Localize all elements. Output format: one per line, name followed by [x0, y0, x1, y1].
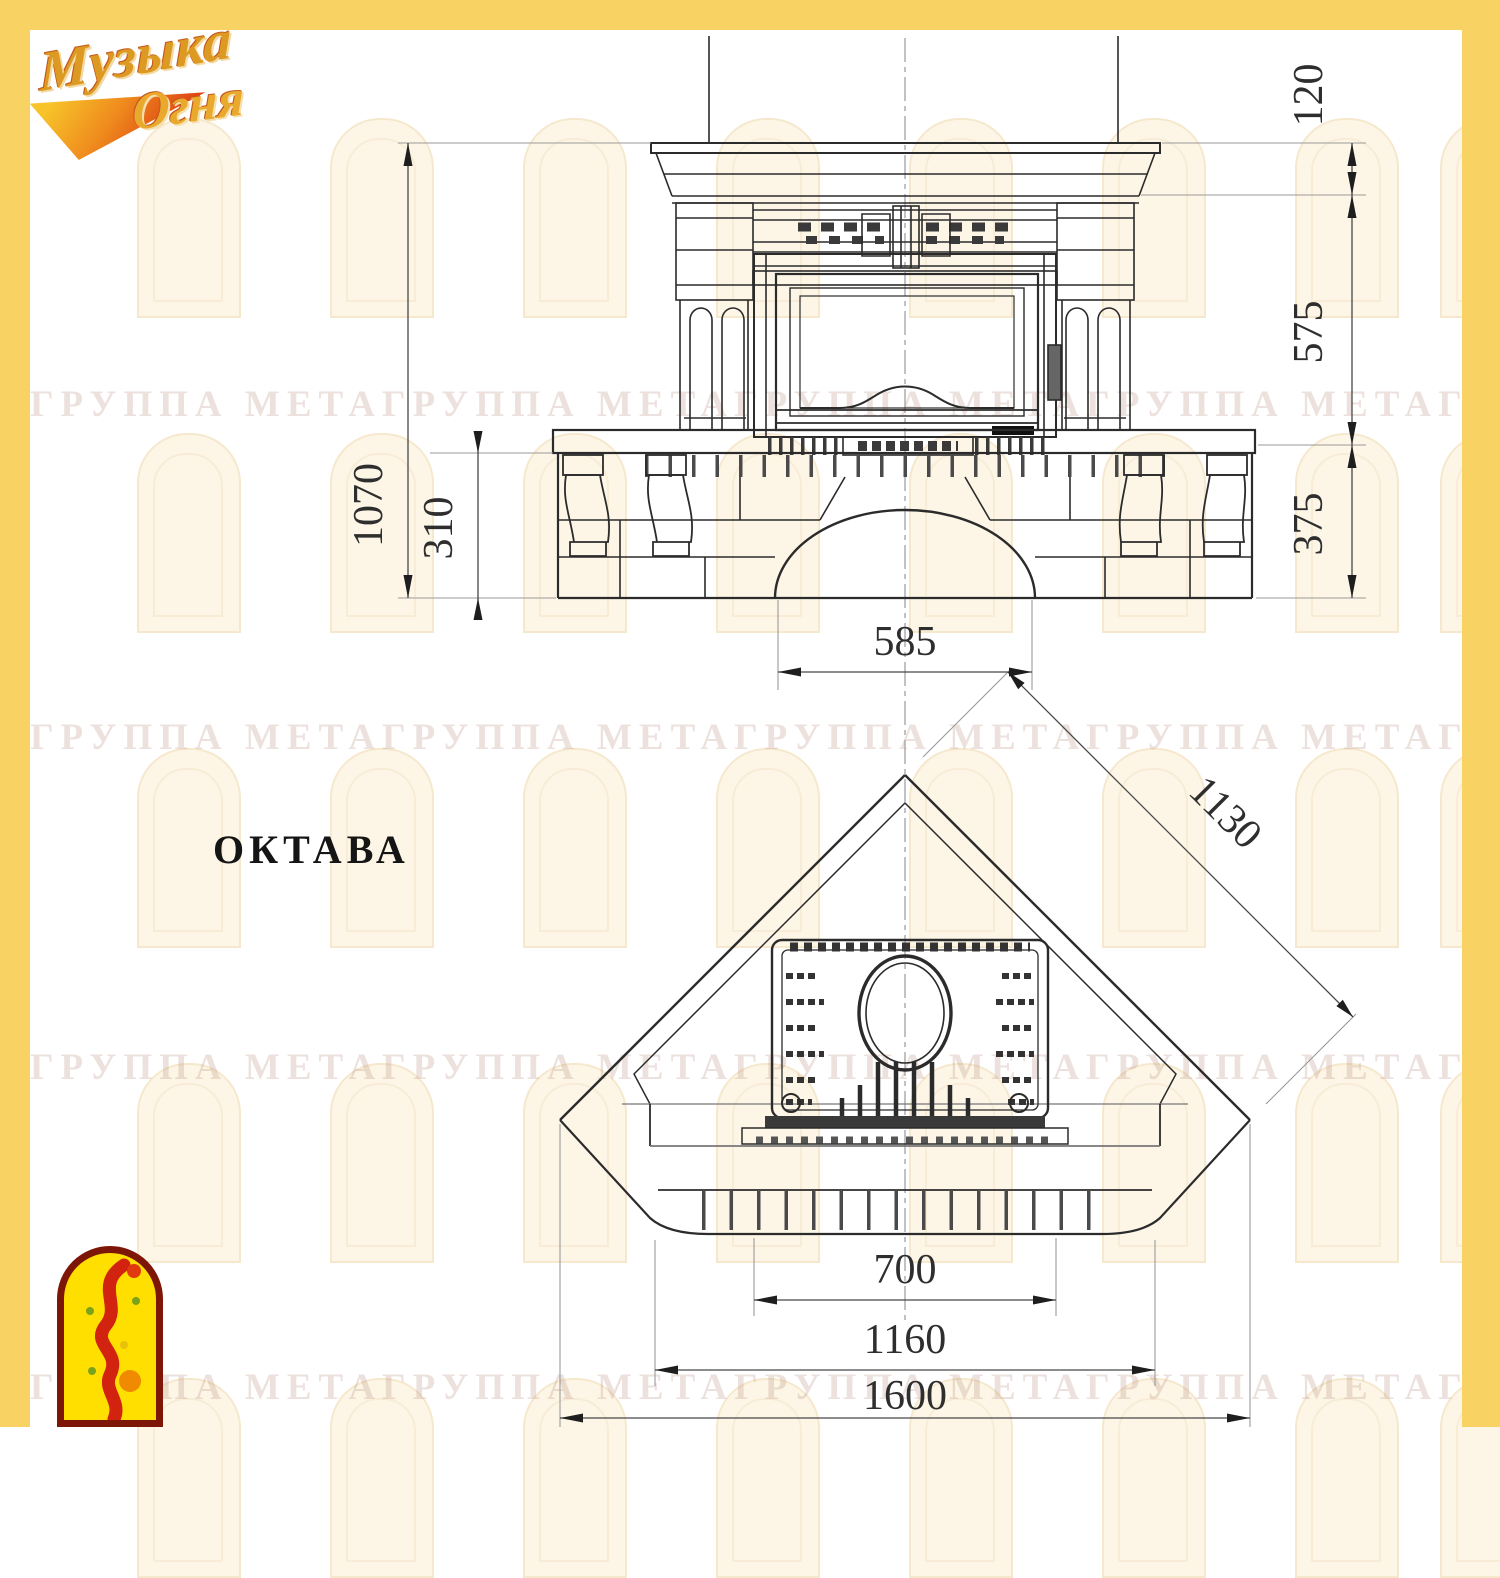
page-border-right: [1462, 0, 1500, 1427]
brand-logo: Музыка Огня: [32, 2, 292, 167]
front-elevation-drawing: [553, 36, 1255, 598]
dim-base-height-label: 375: [1286, 493, 1332, 556]
model-title: ОКТАВА: [213, 826, 410, 873]
dim-firebox-width-label: 700: [874, 1247, 937, 1293]
dim-total-height-label: 1070: [346, 463, 392, 547]
dim-arch-width-label: 585: [874, 619, 937, 665]
dim-diagonal-label: 1130: [1180, 767, 1271, 858]
dim-hearth-height-label: 310: [416, 497, 462, 560]
flame-dancer-icon: [64, 1253, 156, 1423]
fireplace-technical-drawing: 1070 310 120 575 375 585 1130 700 1160 1…: [0, 0, 1500, 1427]
dim-total-width-label: 1600: [863, 1373, 947, 1419]
stamp-logo: [57, 1246, 163, 1427]
door-handle: [1048, 345, 1061, 400]
dim-hearth-width-label: 1160: [864, 1317, 946, 1363]
page-border-left: [0, 0, 30, 1427]
dimension-labels: 1070 310 120 575 375 585 1130 700 1160 1…: [346, 64, 1332, 1420]
dim-opening-label: 575: [1286, 301, 1332, 364]
dim-chimney-label: 120: [1286, 64, 1332, 127]
